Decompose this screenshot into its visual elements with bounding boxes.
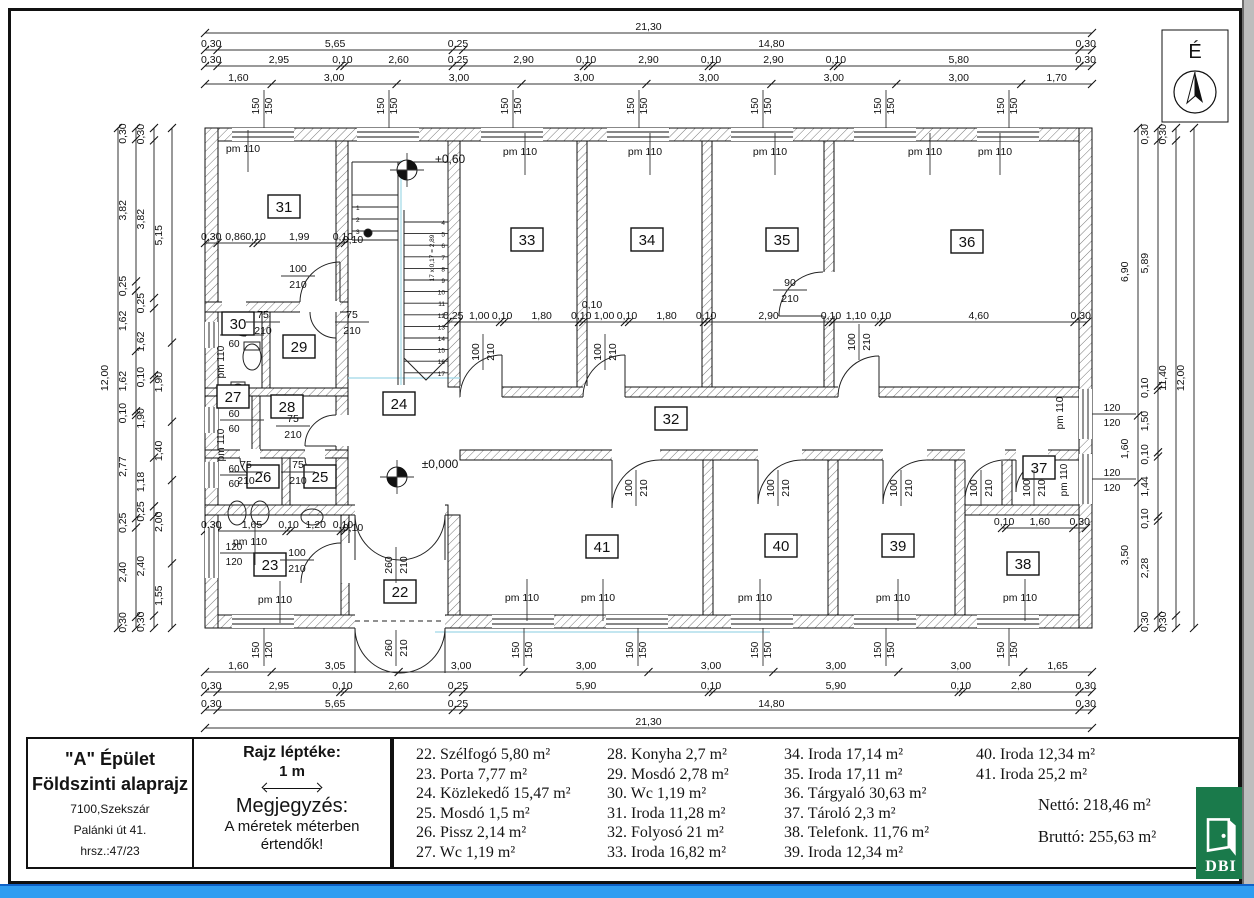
dim-label: 0,30 xyxy=(117,123,129,144)
dim-label: 2,60 xyxy=(388,54,409,66)
room-number: 40 xyxy=(773,538,790,555)
dim-label: 0,10 xyxy=(492,310,513,322)
room-number: 30 xyxy=(230,316,247,333)
dim-label: 1,90 xyxy=(135,408,147,429)
dim-label: 2,90 xyxy=(763,54,784,66)
stair-number: 4 xyxy=(441,220,445,227)
dim-label: 150 xyxy=(639,97,650,114)
legend-entry: 33. Iroda 16,82 m² xyxy=(607,843,729,863)
door-height: 210 xyxy=(237,475,255,487)
level-label: ±0,000 xyxy=(422,457,459,471)
parapet-label: pm 110 xyxy=(226,143,260,155)
dim-label: 3,00 xyxy=(824,72,845,84)
dim-label: 1,18 xyxy=(135,472,147,493)
room-number: 35 xyxy=(774,232,791,249)
scale-bar-icon xyxy=(264,780,320,789)
dim-label: 150 xyxy=(1009,641,1020,658)
room-number: 22 xyxy=(392,584,409,601)
dim-label: 150 xyxy=(513,97,524,114)
walls xyxy=(205,128,1092,628)
door-height: 210 xyxy=(289,475,307,487)
dim-label: 60 xyxy=(228,409,240,420)
dim-label: 0,10 xyxy=(571,310,592,322)
dim-label: 0,10 xyxy=(951,680,972,692)
dim-label: 5,90 xyxy=(826,680,847,692)
door-height: 210 xyxy=(284,429,302,441)
window-scrollbar-strip[interactable] xyxy=(1242,0,1254,884)
room-number: 37 xyxy=(1031,460,1048,477)
dim-label: 1,60 xyxy=(1119,438,1131,459)
dim-label: 21,30 xyxy=(635,21,661,33)
level-label: +0,60 xyxy=(435,152,466,166)
address-line-3: hrsz.:47/23 xyxy=(28,843,192,860)
dim-label: 3,00 xyxy=(576,660,597,672)
door-height: 210 xyxy=(398,556,410,574)
stair-number: 16 xyxy=(438,359,446,366)
door-width: 100 xyxy=(1021,479,1033,497)
dim-label: 11,40 xyxy=(1157,365,1169,391)
legend-entry: 31. Iroda 11,28 m² xyxy=(607,804,729,824)
dim-label: 1,40 xyxy=(153,441,165,462)
dim-label: 1,20 xyxy=(306,519,327,531)
door-width: 100 xyxy=(470,343,482,361)
dim-label: 0,10 xyxy=(117,403,129,424)
dim-label: 0,30 xyxy=(135,124,147,145)
dim-label: 6,90 xyxy=(1119,261,1131,282)
dim-label: 5,80 xyxy=(949,54,970,66)
dim-label: 0,30 xyxy=(1157,611,1169,632)
dim-label: 3,50 xyxy=(1119,545,1131,566)
dim-label: 3,00 xyxy=(451,660,472,672)
dim-label: 21,30 xyxy=(635,716,661,728)
dim-label: 0,30 xyxy=(1139,124,1151,145)
netto-label: Nettó: xyxy=(1038,795,1079,814)
stair-number: 3 xyxy=(356,229,360,236)
door-width: 100 xyxy=(968,479,980,497)
parapet-label: pm 110 xyxy=(216,428,227,461)
dim-label: 1,10 xyxy=(846,310,867,322)
dim-label: 60 xyxy=(228,424,240,435)
legend-entry: 30. Wc 1,19 m² xyxy=(607,784,729,804)
stair-number: 15 xyxy=(438,348,446,355)
legend-entry: 37. Tároló 2,3 m² xyxy=(784,804,929,824)
dim-label: 0,10 xyxy=(343,522,364,534)
dim-label: 150 xyxy=(763,641,774,658)
dim-label: 0,10 xyxy=(617,310,638,322)
dim-label: 2,40 xyxy=(135,556,147,577)
parapet-label: pm 110 xyxy=(216,345,227,378)
dim-label: 150 xyxy=(886,97,897,114)
address-line-2: Palánki út 41. xyxy=(28,822,192,839)
stair-number: 17 xyxy=(438,371,446,378)
dim-label: 3,00 xyxy=(701,660,722,672)
legend-entry: 40. Iroda 12,34 m² xyxy=(976,745,1095,765)
dim-label: 1,00 xyxy=(469,310,490,322)
parapet-label: pm 110 xyxy=(581,592,615,604)
door-width: 100 xyxy=(289,263,307,275)
legend-entry: 35. Iroda 17,11 m² xyxy=(784,765,929,785)
floor-plan-page: 21,300,305,650,2514,800,300,302,950,102,… xyxy=(0,0,1254,898)
door-height: 210 xyxy=(1036,479,1048,497)
room-number: 34 xyxy=(639,232,656,249)
door-width: 260 xyxy=(383,639,395,657)
legend-column-4: 40. Iroda 12,34 m² 41. Iroda 25,2 m² xyxy=(976,745,1095,784)
stair-number: 11 xyxy=(438,301,445,308)
dim-label: 1,65 xyxy=(1047,660,1068,672)
dim-label: 2,77 xyxy=(117,456,129,477)
dim-label: 0,86 xyxy=(225,231,246,243)
dim-label: 0,30 xyxy=(135,611,147,632)
dim-label: 1,60 xyxy=(1030,516,1051,528)
title-block: "A" Épület Földszinti alaprajz 7100,Szek… xyxy=(26,737,392,869)
dim-label: 1,70 xyxy=(1046,72,1067,84)
dim-label: 14,80 xyxy=(758,38,784,50)
dim-label: 1,62 xyxy=(117,371,129,392)
dim-label: 150 xyxy=(626,97,637,114)
parapet-label: pm 110 xyxy=(1059,463,1070,496)
stair-number: 1 xyxy=(356,205,360,212)
dim-label: 120 xyxy=(1104,468,1121,479)
dim-label: 3,05 xyxy=(325,660,346,672)
dim-label: 150 xyxy=(264,97,275,114)
parapet-label: pm 110 xyxy=(753,146,787,158)
dim-label: 1,99 xyxy=(289,231,310,243)
parapet-label: pm 110 xyxy=(1055,396,1066,429)
door-width: 100 xyxy=(846,333,858,351)
dim-label: 4,60 xyxy=(969,310,990,322)
dim-label: 1,55 xyxy=(153,585,165,606)
dim-label: 0,10 xyxy=(871,310,892,322)
legend-entry: 22. Szélfogó 5,80 m² xyxy=(416,745,571,765)
dim-label: 5,65 xyxy=(325,38,346,50)
note-line-1: A méretek méterben xyxy=(194,818,390,836)
dim-label: 2,60 xyxy=(388,680,409,692)
dim-label: 3,82 xyxy=(117,200,129,221)
dim-label: 120 xyxy=(1104,418,1121,429)
window-bottom-bar[interactable] xyxy=(0,884,1254,898)
dim-label: 2,00 xyxy=(153,511,165,532)
room-number: 36 xyxy=(959,234,976,251)
dim-label: 0,10 xyxy=(701,680,722,692)
dim-label: 0,10 xyxy=(135,367,147,388)
parapet-label: pm 110 xyxy=(628,146,662,158)
door-width: 75 xyxy=(346,309,358,321)
dim-label: 1,80 xyxy=(531,310,552,322)
dim-label: 2,80 xyxy=(1011,680,1032,692)
brutto-label: Bruttó: xyxy=(1038,827,1085,846)
legend-entry: 24. Közlekedő 15,47 m² xyxy=(416,784,571,804)
dim-label: 1,90 xyxy=(153,372,165,393)
dim-label: 3,00 xyxy=(951,660,972,672)
dim-label: 120 xyxy=(1104,483,1121,494)
dim-label: 1,62 xyxy=(117,310,129,331)
dim-label: 150 xyxy=(524,641,535,658)
dim-label: 1,60 xyxy=(228,660,249,672)
note-title: Megjegyzés: xyxy=(194,795,390,818)
room-number: 38 xyxy=(1015,556,1032,573)
stair-number: 8 xyxy=(441,266,445,273)
dim-label: 3,00 xyxy=(574,72,595,84)
door-width: 100 xyxy=(592,343,604,361)
dim-label: 1,44 xyxy=(1139,476,1151,497)
room-number: 31 xyxy=(276,199,293,216)
legend-column-3: 34. Iroda 17,14 m² 35. Iroda 17,11 m² 36… xyxy=(784,745,929,862)
parapet-label: pm 110 xyxy=(258,594,292,606)
room-number: 33 xyxy=(519,232,536,249)
dim-label: 0,10 xyxy=(1139,444,1151,465)
scale-value: 1 m xyxy=(194,763,390,780)
dim-label: 0,25 xyxy=(135,501,147,522)
legend-entry: 36. Tárgyaló 30,63 m² xyxy=(784,784,929,804)
legend-entry: 34. Iroda 17,14 m² xyxy=(784,745,929,765)
parapet-label: pm 110 xyxy=(503,146,537,158)
dim-label: 0,10 xyxy=(994,516,1015,528)
dim-label: 0,25 xyxy=(135,293,147,314)
dim-label: 0,10 xyxy=(278,519,299,531)
netto-total: Nettó: 218,46 m² xyxy=(1038,795,1156,815)
dim-label: 5,15 xyxy=(153,225,165,246)
door-height: 210 xyxy=(254,325,272,337)
door-height: 210 xyxy=(343,325,361,337)
door-width: 100 xyxy=(765,479,777,497)
dim-label: 120 xyxy=(226,557,243,568)
dim-label: 150 xyxy=(886,641,897,658)
stair-number: 7 xyxy=(441,255,445,262)
dim-label: 0,10 xyxy=(576,54,597,66)
netto-value: 218,46 m² xyxy=(1083,795,1150,814)
parapet-label: pm 110 xyxy=(738,592,772,604)
dim-label: 2,95 xyxy=(269,680,290,692)
dim-label: 1,65 xyxy=(242,519,263,531)
brutto-value: 255,63 m² xyxy=(1089,827,1156,846)
dim-label: 120 xyxy=(1104,403,1121,414)
dim-label: 5,65 xyxy=(325,698,346,710)
dim-label: 5,90 xyxy=(576,680,597,692)
dim-label: 150 xyxy=(1009,97,1020,114)
parapet-label: pm 110 xyxy=(233,536,267,548)
legend-entry: 27. Wc 1,19 m² xyxy=(416,843,571,863)
dim-label: 60 xyxy=(228,339,240,350)
door-width: 260 xyxy=(383,556,395,574)
legend-entry: 32. Folyosó 21 m² xyxy=(607,823,729,843)
dim-label: 0,30 xyxy=(1069,516,1090,528)
stair-number: 9 xyxy=(441,278,445,285)
dim-label: 3,00 xyxy=(949,72,970,84)
dim-label: 3,82 xyxy=(135,209,147,230)
dim-label: 0,10 xyxy=(245,231,266,243)
north-label: É xyxy=(1188,40,1201,63)
door-width: 75 xyxy=(292,459,304,471)
dim-label: 1,50 xyxy=(1139,411,1151,432)
door-height: 210 xyxy=(398,639,410,657)
door-height: 210 xyxy=(288,563,306,575)
door-height: 210 xyxy=(485,343,497,361)
note-line-2: értendők! xyxy=(194,836,390,854)
dim-label: 150 xyxy=(763,97,774,114)
dim-label: 1,60 xyxy=(228,72,249,84)
dbi-logo: DBI xyxy=(1196,787,1246,879)
door-height: 210 xyxy=(983,479,995,497)
title-block-identity: "A" Épület Földszinti alaprajz 7100,Szek… xyxy=(28,739,194,867)
dim-label: 14,80 xyxy=(758,698,784,710)
dim-label: 0,30 xyxy=(1139,611,1151,632)
dim-label: 150 xyxy=(511,641,522,658)
dim-label: 150 xyxy=(996,641,1007,658)
room-number: 23 xyxy=(262,557,279,574)
door-width: 100 xyxy=(623,479,635,497)
dim-label: 1,00 xyxy=(594,310,615,322)
dim-label: 2,90 xyxy=(638,54,659,66)
door-height: 210 xyxy=(903,479,915,497)
room-number: 41 xyxy=(594,539,611,556)
dim-label: 3,00 xyxy=(324,72,345,84)
dim-label: 5,89 xyxy=(1139,253,1151,274)
dim-label: 2,40 xyxy=(117,562,129,583)
legend-entry: 26. Pissz 2,14 m² xyxy=(416,823,571,843)
dim-label: 150 xyxy=(873,97,884,114)
legend-entry: 41. Iroda 25,2 m² xyxy=(976,765,1095,785)
legend-column-1: 22. Szélfogó 5,80 m² 23. Porta 7,77 m² 2… xyxy=(416,745,571,862)
dim-label: 0,10 xyxy=(332,54,353,66)
dim-label: 0,10 xyxy=(343,234,364,246)
room-number: 24 xyxy=(391,396,408,413)
dim-label: 0,30 xyxy=(117,612,129,633)
room-number: 32 xyxy=(663,411,680,428)
dim-label: 150 xyxy=(638,641,649,658)
door-height: 210 xyxy=(781,293,799,305)
dim-label: 0,10 xyxy=(582,299,603,311)
legend-entry: 29. Mosdó 2,78 m² xyxy=(607,765,729,785)
dim-label: 2,90 xyxy=(758,310,779,322)
parapet-label: pm 110 xyxy=(908,146,942,158)
stair-number: 2 xyxy=(356,217,360,224)
dim-label: 0,10 xyxy=(826,54,847,66)
door-height: 210 xyxy=(780,479,792,497)
stair-number: 14 xyxy=(438,336,446,343)
dim-label: 150 xyxy=(500,97,511,114)
parapet-label: pm 110 xyxy=(505,592,539,604)
dim-label: 60 xyxy=(228,464,240,475)
dim-label: 150 xyxy=(750,97,761,114)
logo-text: DBI xyxy=(1205,858,1236,876)
dim-label: 0,10 xyxy=(701,54,722,66)
stair-number: 13 xyxy=(438,324,446,331)
stair-number: 10 xyxy=(438,290,446,297)
scale-title: Rajz léptéke: xyxy=(194,743,390,763)
door-width: 75 xyxy=(257,309,269,321)
stair-note: 17 x 0,17 = 2,89 xyxy=(429,234,436,281)
legend-entry: 25. Mosdó 1,5 m² xyxy=(416,804,571,824)
legend-entry: 39. Iroda 12,34 m² xyxy=(784,843,929,863)
legend-column-2: 28. Konyha 2,7 m² 29. Mosdó 2,78 m² 30. … xyxy=(607,745,729,862)
dim-label: 2,28 xyxy=(1139,558,1151,579)
dim-label: 150 xyxy=(389,97,400,114)
stair-number: 5 xyxy=(441,232,445,239)
door-height: 210 xyxy=(638,479,650,497)
dim-label: 0,10 xyxy=(1139,508,1151,529)
sanitary-fixtures xyxy=(228,342,323,525)
door-height: 210 xyxy=(607,343,619,361)
legend-entry: 28. Konyha 2,7 m² xyxy=(607,745,729,765)
building-name: "A" Épület xyxy=(28,747,192,772)
address-line-1: 7100,Szekszár xyxy=(28,801,192,818)
dim-label: 12,00 xyxy=(1175,365,1187,391)
dim-label: 2,90 xyxy=(513,54,534,66)
dim-label: 150 xyxy=(251,97,262,114)
door-icon xyxy=(1202,812,1240,858)
dim-label: 3,00 xyxy=(449,72,470,84)
room-number: 29 xyxy=(291,339,308,356)
dim-label: 1,62 xyxy=(135,331,147,352)
dim-label: 0,25 xyxy=(117,512,129,533)
brutto-total: Bruttó: 255,63 m² xyxy=(1038,827,1156,847)
dim-label: 0,25 xyxy=(117,276,129,297)
parapet-label: pm 110 xyxy=(876,592,910,604)
dim-label: 0,30 xyxy=(201,231,222,243)
dim-label: 150 xyxy=(251,641,262,658)
stair-number: 12 xyxy=(438,313,446,320)
door-width: 100 xyxy=(888,479,900,497)
door-height: 210 xyxy=(289,279,307,291)
door-width: 90 xyxy=(784,277,796,289)
dim-label: 150 xyxy=(625,641,636,658)
door-height: 210 xyxy=(861,333,873,351)
parapet-label: pm 110 xyxy=(1003,592,1037,604)
dim-label: 3,00 xyxy=(826,660,847,672)
dim-label: 150 xyxy=(750,641,761,658)
dim-label: 0,10 xyxy=(332,680,353,692)
dim-label: 1,80 xyxy=(656,310,677,322)
stair-number: 6 xyxy=(441,243,445,250)
parapet-label: pm 110 xyxy=(978,146,1012,158)
scale-block: Rajz léptéke: 1 m Megjegyzés: A méretek … xyxy=(194,739,390,867)
dim-label: 0,10 xyxy=(821,310,842,322)
drawing-name: Földszinti alaprajz xyxy=(28,772,192,797)
legend-entry: 23. Porta 7,77 m² xyxy=(416,765,571,785)
dim-label: 0,10 xyxy=(696,310,717,322)
room-number: 27 xyxy=(225,389,242,406)
door-width: 75 xyxy=(240,459,252,471)
dim-label: 150 xyxy=(873,641,884,658)
legend-entry: 38. Telefonk. 11,76 m² xyxy=(784,823,929,843)
area-totals: Nettó: 218,46 m² Bruttó: 255,63 m² xyxy=(1038,795,1156,859)
door-width: 100 xyxy=(288,547,306,559)
dim-label: 150 xyxy=(376,97,387,114)
dim-label: 150 xyxy=(996,97,1007,114)
dim-label: 2,95 xyxy=(269,54,290,66)
dim-label: 12,00 xyxy=(99,365,111,391)
dim-label: 120 xyxy=(264,641,275,658)
dim-label: 0,30 xyxy=(1157,124,1169,145)
dim-label: 3,00 xyxy=(699,72,720,84)
door-width: 75 xyxy=(287,413,299,425)
dim-label: 0,10 xyxy=(1139,377,1151,398)
room-number: 39 xyxy=(890,538,907,555)
